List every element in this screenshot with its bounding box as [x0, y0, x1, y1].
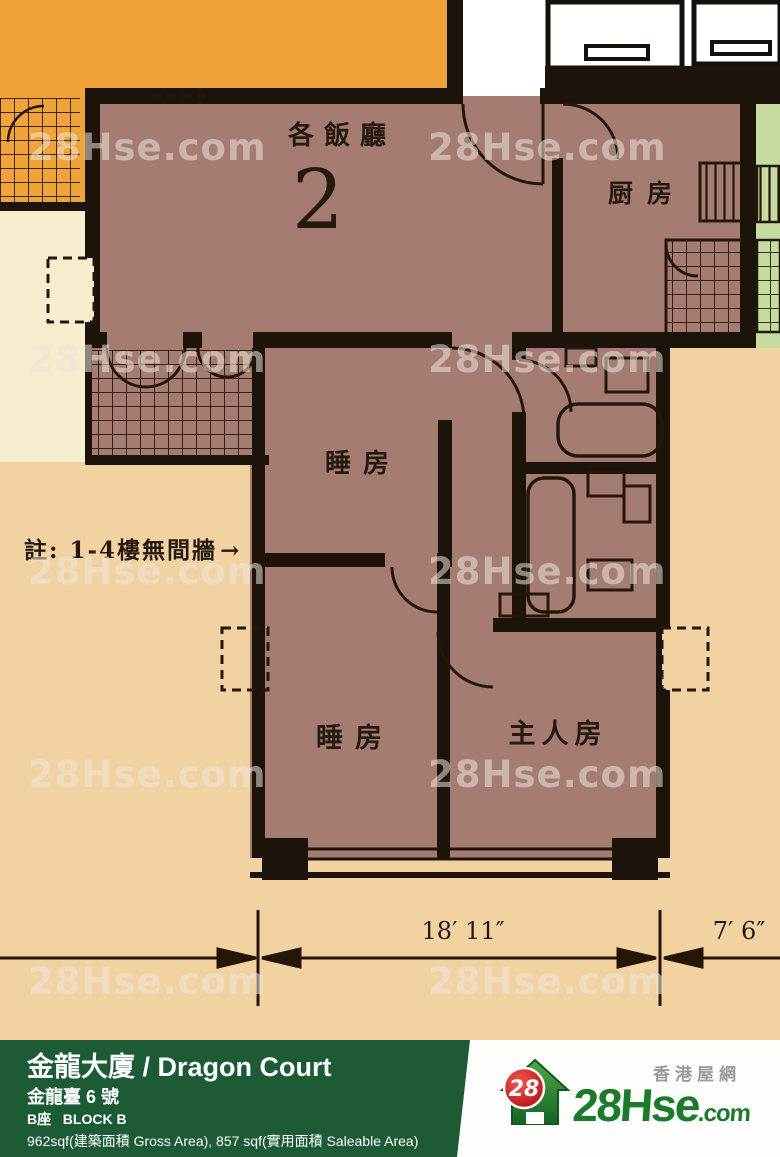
master-bedroom-label: 主人房	[488, 720, 628, 750]
bedroom1-label: 睡房	[308, 450, 418, 479]
footer-logo-panel: 28 香港屋網 28Hse .com	[447, 1040, 780, 1157]
note-arrow-icon: →	[217, 537, 241, 564]
stairwell-hatch	[0, 98, 80, 204]
floor-note: 註: 1-4樓無間牆→	[24, 538, 241, 563]
area-info: 962sqf(建築面積 Gross Area), 857 sqf(實用面積 Sa…	[27, 1131, 418, 1151]
kitchen-louvre-window	[700, 163, 744, 221]
kitchen-balcony-grille	[666, 240, 742, 334]
logo-brand[interactable]: 28Hse .com	[571, 1082, 752, 1128]
building-name: 金龍大廈 / Dragon Court	[27, 1045, 332, 1084]
bedroom2-label: 睡房	[300, 724, 410, 754]
lift-door-2	[712, 42, 770, 54]
block-label: B座 BLOCK B	[27, 1109, 127, 1129]
floorplan-page: 各飯廳 2 厨房 睡房 睡房 主人房 註: 1-4樓無間牆→ 18′ 11″ 7…	[0, 0, 780, 1157]
ac-platform-right	[662, 628, 708, 690]
orange-block-top	[0, 0, 463, 96]
badge-number: 28	[509, 1077, 540, 1102]
ac-platform-left-upper	[48, 258, 94, 322]
lift-shafts	[548, 2, 780, 68]
floor-plan-drawing	[0, 0, 780, 1030]
note-text: 註: 1-4樓無間牆	[24, 537, 217, 564]
living-dining-label: 各飯廳	[262, 122, 422, 151]
kitchen-label: 厨房	[592, 180, 702, 208]
dimension-right-label: 7′ 6″	[698, 918, 780, 944]
building-address: 金龍臺 6 號	[27, 1083, 119, 1109]
neighbor-grille	[757, 240, 780, 332]
unit-number-label: 2	[278, 156, 358, 246]
dimension-main-label: 18′ 11″	[398, 918, 528, 944]
logo-brand-suffix: .com	[697, 1100, 751, 1128]
neighbor-louvre-window	[757, 166, 780, 222]
cream-block-left	[0, 206, 85, 462]
house-logo-icon[interactable]: 28	[500, 1058, 570, 1130]
house-door	[526, 1112, 544, 1124]
footer-bar: 金龍大廈 / Dragon Court 金龍臺 6 號 B座 BLOCK B 9…	[0, 1040, 780, 1157]
balcony-grille	[88, 350, 264, 456]
living-kitchen-floor	[100, 96, 756, 348]
logo-brand-main: 28Hse	[571, 1082, 700, 1128]
bedroom-column-floor	[250, 348, 670, 858]
lift-door-1	[586, 46, 648, 59]
